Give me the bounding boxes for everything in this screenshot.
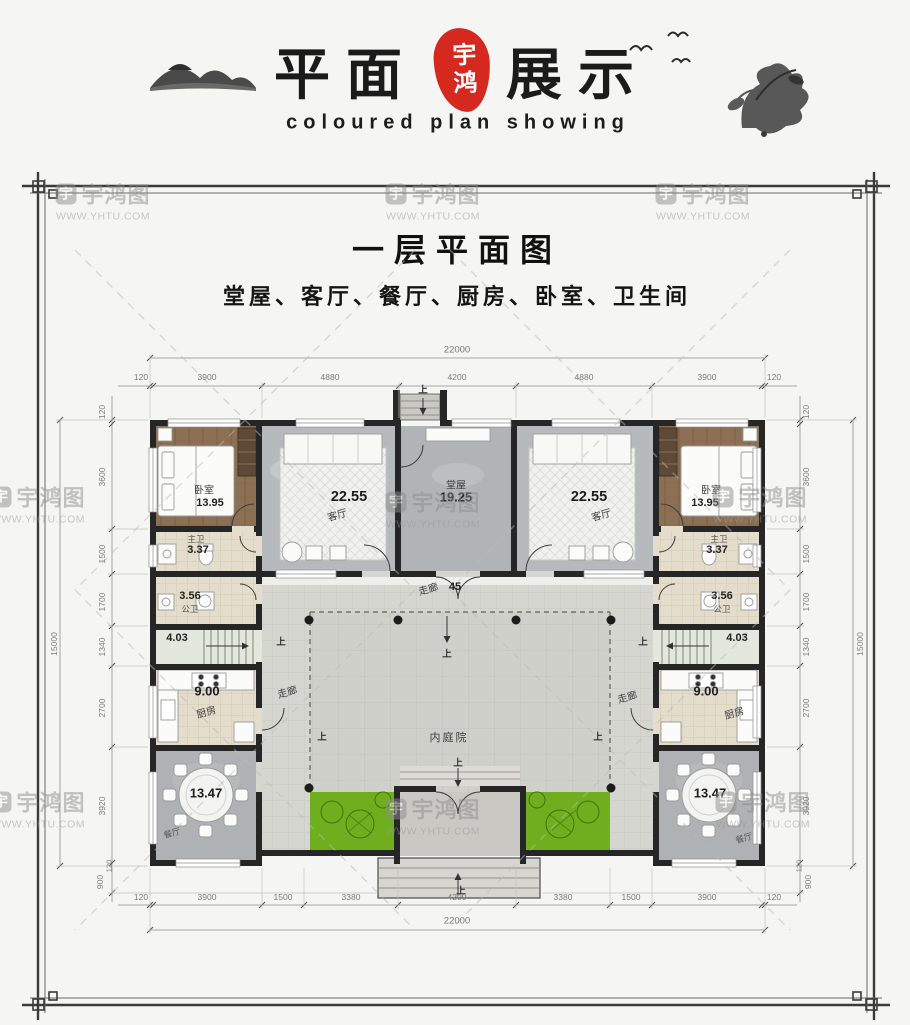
dim-right-seg: 3600 <box>801 468 811 487</box>
dim-left-seg: 3600 <box>97 468 107 487</box>
dim-top-seg: 120 <box>134 372 148 382</box>
dim-left-seg: 120 <box>105 860 114 873</box>
room-area-bath-public-left: 3.56 <box>179 590 200 602</box>
dim-bottom-seg: 1500 <box>274 892 293 902</box>
dim-top-total: 22000 <box>444 345 470 356</box>
room-label-bath-public-right: 公卫 <box>713 603 730 615</box>
up-mark: 上 <box>418 382 428 396</box>
dim-left-total: 15000 <box>49 632 59 656</box>
dim-bottom-seg: 3900 <box>698 892 717 902</box>
dim-right-seg: 120 <box>801 405 811 419</box>
room-area-bedroom-left: 13.95 <box>196 497 224 509</box>
up-mark: 上 <box>593 729 603 743</box>
dim-left-seg: 120 <box>97 405 107 419</box>
room-area-dining-left: 13.47 <box>190 786 223 801</box>
dim-right-seg: 120 <box>795 860 804 873</box>
dim-right-seg: 1340 <box>801 638 811 657</box>
dim-right-seg: 1700 <box>801 593 811 612</box>
floor-plan-drawing <box>0 0 910 1025</box>
room-area-dining-right: 13.47 <box>694 786 727 801</box>
dim-bottom-seg: 3380 <box>342 892 361 902</box>
room-area-bath-master-right: 3.37 <box>706 544 727 556</box>
dim-left-seg: 1500 <box>97 545 107 564</box>
dim-top-seg: 3900 <box>698 372 717 382</box>
dim-top-seg: 120 <box>767 372 781 382</box>
dim-right-seg: 900 <box>803 875 813 889</box>
room-area-bedroom-right: 13.95 <box>691 497 719 509</box>
room-label-bath-public-left: 公卫 <box>181 603 198 615</box>
dim-bottom-seg: 120 <box>134 892 148 902</box>
dim-bottom-seg: 120 <box>767 892 781 902</box>
room-area-living-left: 22.55 <box>331 489 367 505</box>
up-mark: 上 <box>442 646 452 660</box>
room-area-stairs-right: 4.03 <box>726 632 747 644</box>
dim-bottom-total: 22000 <box>444 916 470 927</box>
dim-left-seg: 3920 <box>97 797 107 816</box>
room-area-kitchen-left: 9.00 <box>194 684 219 699</box>
room-area-stairs-left: 4.03 <box>166 632 187 644</box>
room-area-hall: 19.25 <box>440 490 473 505</box>
up-mark: 上 <box>317 729 327 743</box>
floor-plan-poster: 平面 宇鸿 展示 coloured plan showing <box>0 0 910 1025</box>
dim-top-seg: 4200 <box>448 372 467 382</box>
room-area-bath-master-left: 3.37 <box>187 544 208 556</box>
up-mark: 上 <box>453 755 463 769</box>
dim-left-seg: 1700 <box>97 593 107 612</box>
dim-left-seg: 2700 <box>97 699 107 718</box>
dim-bottom-seg: 3380 <box>554 892 573 902</box>
up-mark: 上 <box>276 634 286 648</box>
dim-bottom-seg: 4200 <box>448 892 467 902</box>
dim-top-seg: 3900 <box>198 372 217 382</box>
room-label-bedroom-left: 卧室 <box>194 482 214 497</box>
dim-right-seg: 2700 <box>801 699 811 718</box>
room-area-bath-public-right: 3.56 <box>711 590 732 602</box>
dim-bottom-seg: 3900 <box>198 892 217 902</box>
dim-right-seg: 1500 <box>801 545 811 564</box>
dim-top-seg: 4880 <box>321 372 340 382</box>
dim-right-seg: 3920 <box>801 797 811 816</box>
dim-right-total: 15000 <box>855 632 865 656</box>
room-label-courtyard: 内庭院 <box>430 729 469 745</box>
dim-top-seg: 4880 <box>575 372 594 382</box>
dim-left-seg: 1340 <box>97 638 107 657</box>
dim-bottom-seg: 1500 <box>622 892 641 902</box>
room-area-kitchen-right: 9.00 <box>693 684 718 699</box>
room-area-living-right: 22.55 <box>571 489 607 505</box>
dim-left-seg: 900 <box>95 875 105 889</box>
up-mark: 上 <box>638 634 648 648</box>
room-area-corridor: 45 <box>449 581 461 593</box>
room-label-bedroom-right: 卧室 <box>701 482 721 497</box>
